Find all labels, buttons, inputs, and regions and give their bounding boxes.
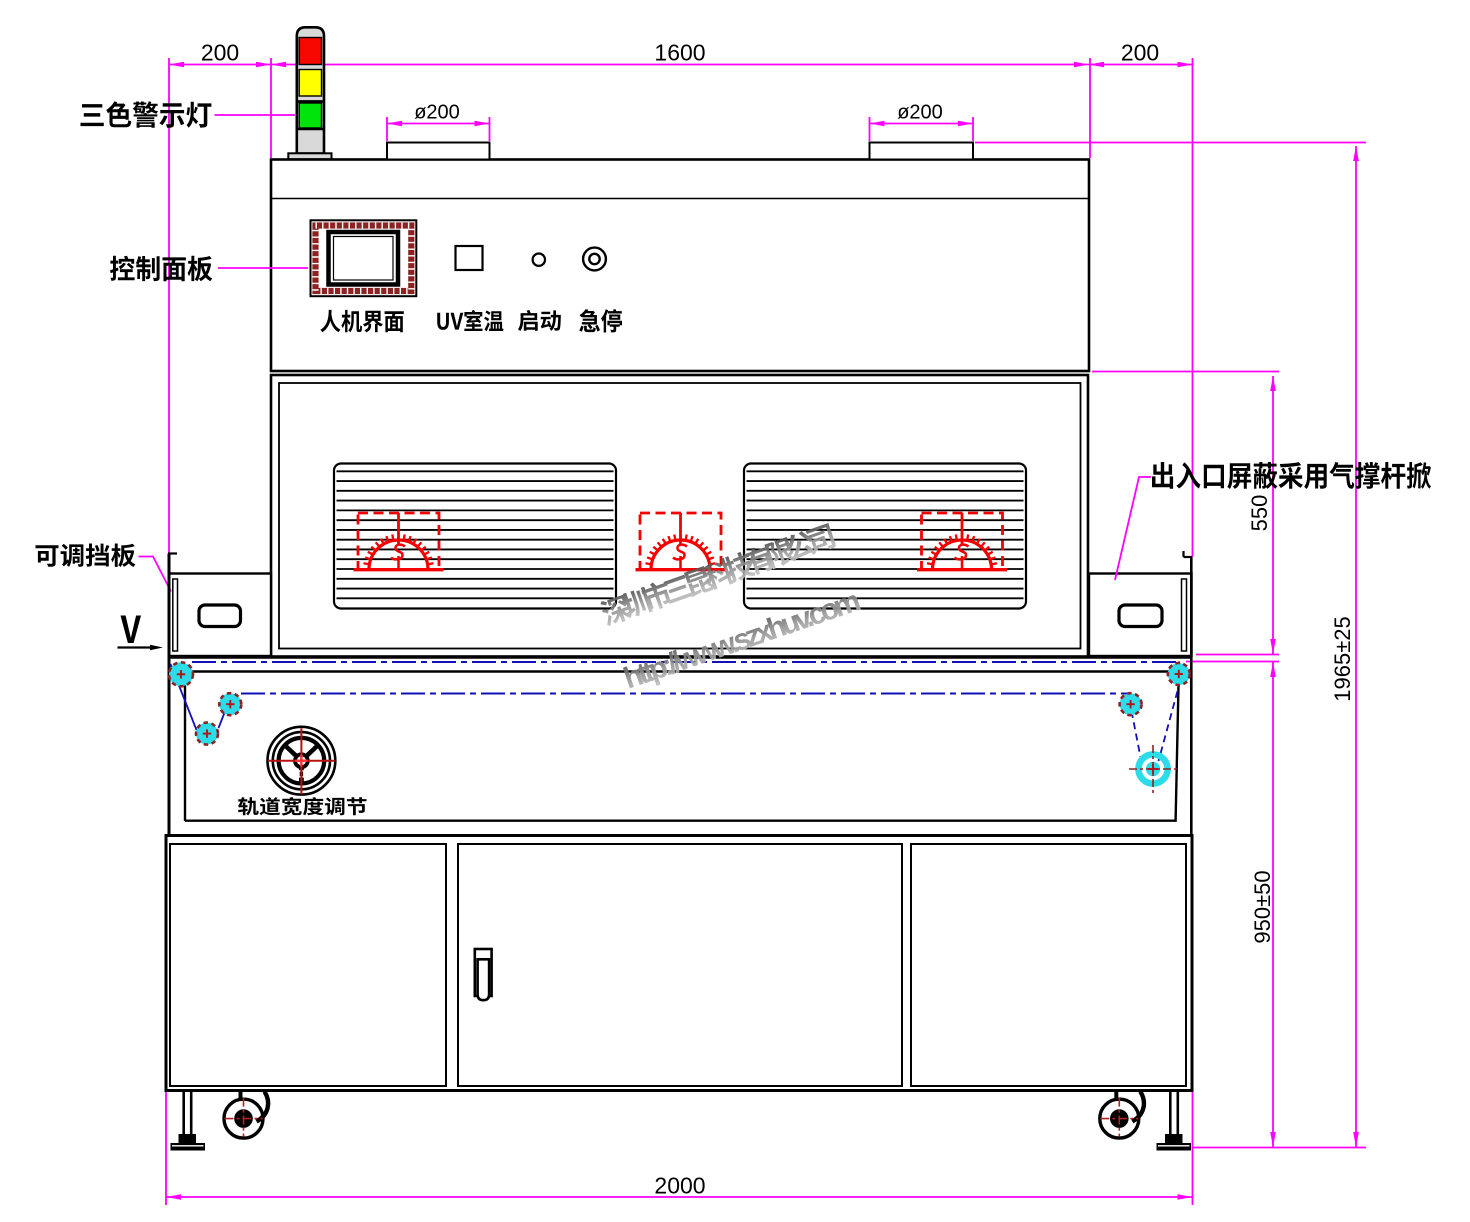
svg-text:950±50: 950±50 (1250, 870, 1275, 943)
svg-text:2000: 2000 (654, 1173, 705, 1199)
svg-text:550: 550 (1247, 495, 1272, 532)
svg-text:1600: 1600 (654, 40, 705, 66)
svg-text:ø200: ø200 (897, 102, 943, 124)
svg-text:200: 200 (1121, 40, 1159, 66)
svg-text:200: 200 (201, 40, 239, 66)
svg-text:ø200: ø200 (414, 102, 460, 124)
svg-text:1965±25: 1965±25 (1330, 616, 1355, 702)
